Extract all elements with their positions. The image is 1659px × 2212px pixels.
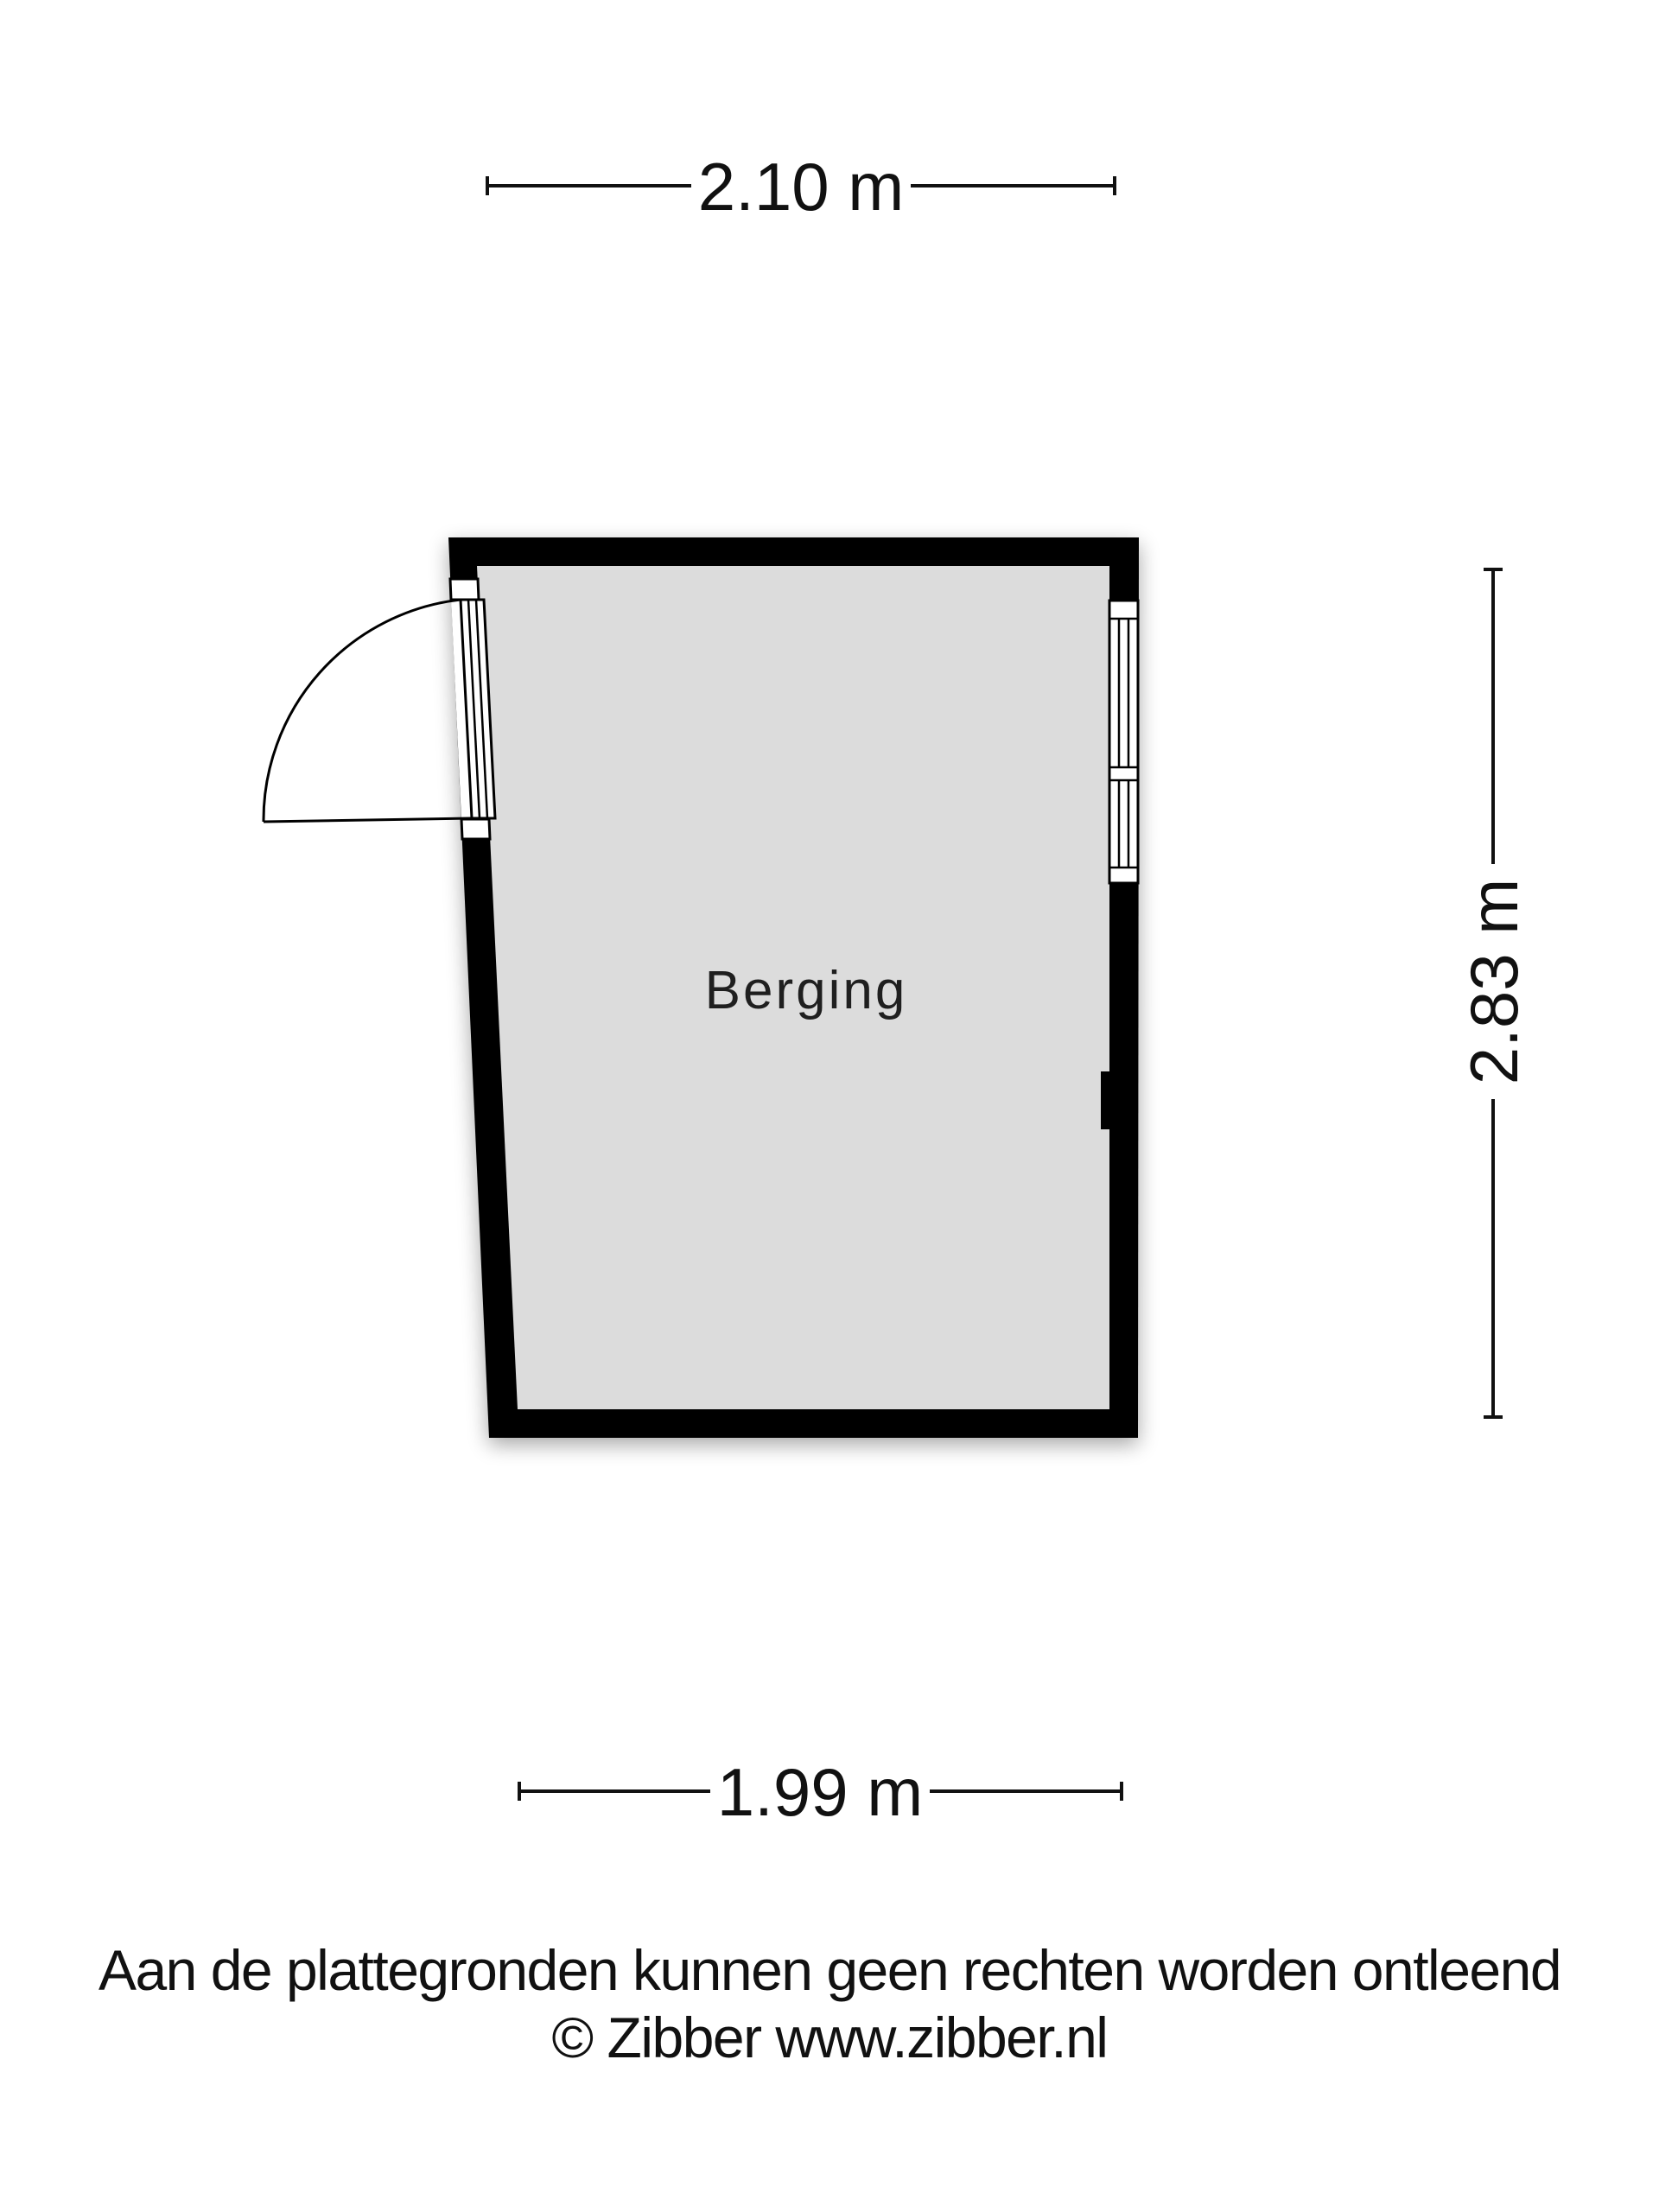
room-label: Berging	[705, 961, 908, 1020]
door-jamb-top	[450, 579, 479, 600]
floor-plan-page: Berging 2.10 m 2.83 m 1.99 m Aan de plat	[0, 0, 1659, 2212]
dimension-top: 2.10 m	[487, 149, 1115, 225]
dim-bottom-value: 1.99 m	[717, 1754, 923, 1830]
dim-right-value: 2.83 m	[1456, 879, 1532, 1084]
dim-top-value: 2.10 m	[698, 149, 904, 225]
dimension-right: 2.83 m	[1456, 569, 1532, 1417]
floor-plan-svg: Berging 2.10 m 2.83 m 1.99 m Aan de plat	[0, 0, 1659, 2212]
window	[1109, 601, 1138, 883]
door-swing-arc	[264, 600, 461, 822]
wall-nub	[1101, 1071, 1111, 1129]
footer-copyright: © Zibber www.zibber.nl	[552, 2005, 1108, 2069]
door-jamb-bottom	[461, 819, 490, 839]
window-frame	[1109, 601, 1138, 883]
door-swing-line	[264, 818, 472, 822]
footer-disclaimer: Aan de plattegronden kunnen geen rechten…	[99, 1938, 1560, 2002]
dimension-bottom: 1.99 m	[519, 1754, 1122, 1830]
